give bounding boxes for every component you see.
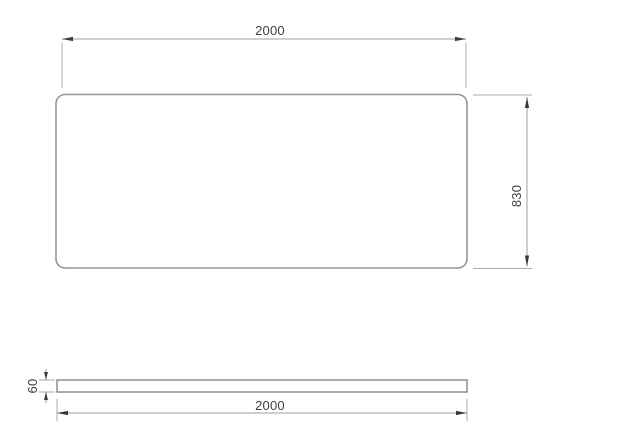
top-width-dimension-label: 2000 bbox=[255, 23, 285, 38]
top-width-dimension: 2000 bbox=[62, 23, 466, 88]
technical-drawing-canvas: 2000 830 60 bbox=[0, 0, 642, 440]
arrowhead-right-icon bbox=[456, 411, 467, 415]
height-dimension: 830 bbox=[473, 95, 532, 269]
arrowhead-up-icon bbox=[44, 392, 48, 400]
plate-side-view-outline bbox=[57, 380, 467, 392]
arrowhead-up-icon bbox=[525, 97, 529, 108]
drawing-page: 2000 830 60 bbox=[0, 0, 642, 440]
thickness-dimension: 60 bbox=[25, 369, 55, 403]
height-dimension-label: 830 bbox=[509, 185, 524, 207]
side-length-dimension-label: 2000 bbox=[255, 398, 285, 413]
plate-top-view-outline bbox=[56, 95, 467, 269]
arrowhead-down-icon bbox=[44, 372, 48, 380]
arrowhead-right-icon bbox=[455, 37, 466, 41]
arrowhead-down-icon bbox=[525, 256, 529, 267]
arrowhead-left-icon bbox=[62, 37, 73, 41]
arrowhead-left-icon bbox=[57, 411, 68, 415]
thickness-dimension-label: 60 bbox=[25, 379, 40, 394]
side-length-dimension: 2000 bbox=[57, 398, 467, 421]
